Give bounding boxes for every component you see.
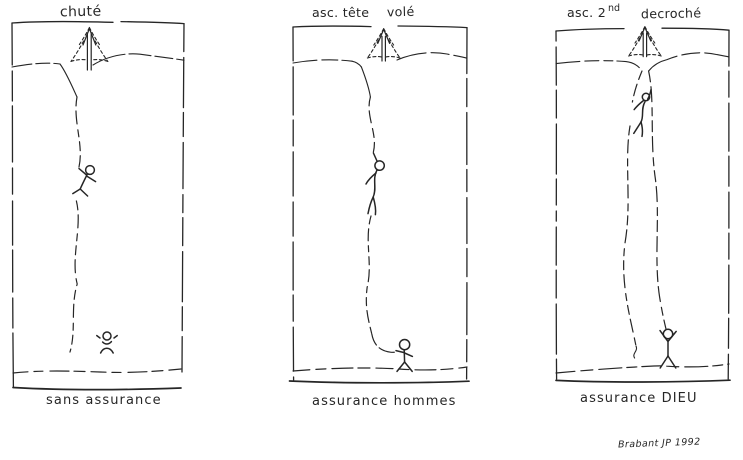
panel2-top-label-right: volé xyxy=(387,4,415,20)
panel1-route-line xyxy=(70,97,80,352)
hand-drawn-climbing-cartoon: chuté xyxy=(0,0,743,460)
panel3-rope-right xyxy=(649,71,666,329)
panel3-top-label-left: asc. 2 xyxy=(567,5,606,20)
panel1-cliff-top-line xyxy=(12,54,184,97)
panel1-border xyxy=(12,22,184,390)
artist-signature: Brabant JP 1992 xyxy=(618,437,701,451)
panel2-caption: assurance hommes xyxy=(312,394,456,409)
splatted-climber-figure xyxy=(97,332,117,353)
falling-climber-figure xyxy=(73,166,96,196)
panel1-top-label: chuté xyxy=(60,4,102,21)
panel-assurance-dieu: asc. 2 nd decroché xyxy=(556,3,730,406)
panel3-top-label-superscript: nd xyxy=(608,3,620,14)
panel1-caption: sans assurance xyxy=(46,393,162,408)
panel2-top-label-left: asc. tête xyxy=(312,5,369,20)
panel1-tree-icon xyxy=(71,28,108,71)
panel3-top-label-right: decroché xyxy=(641,5,702,21)
panel2-tree-icon xyxy=(367,29,400,61)
panel2-cliff-top-line xyxy=(293,53,467,97)
panel-assurance-hommes: asc. tête volé xyxy=(290,4,470,409)
panel-sans-assurance: chuté xyxy=(12,4,184,408)
panel2-border xyxy=(290,26,470,383)
panel2-rope-upper xyxy=(369,97,374,152)
panel3-tree-icon xyxy=(629,27,662,57)
panel3-ground-line xyxy=(556,364,729,373)
panel3-border xyxy=(556,28,730,382)
panel3-rope-left-tail xyxy=(634,346,637,358)
panel2-rope-lower xyxy=(366,216,371,334)
panel3-rope-left-lower xyxy=(624,126,636,346)
panel2-rope-to-belayer xyxy=(372,334,398,352)
hanging-climber-figure xyxy=(366,153,384,215)
sketch-drawing: chuté xyxy=(0,0,743,460)
belayer-figure xyxy=(396,340,412,372)
dangling-climber-figure xyxy=(634,90,651,137)
panel1-ground-line xyxy=(13,369,181,373)
second-climber-figure xyxy=(660,329,676,368)
panel2-ground-line xyxy=(293,367,467,371)
panel3-rope-left-upper xyxy=(632,71,642,102)
panel3-caption: assurance DIEU xyxy=(580,391,698,406)
